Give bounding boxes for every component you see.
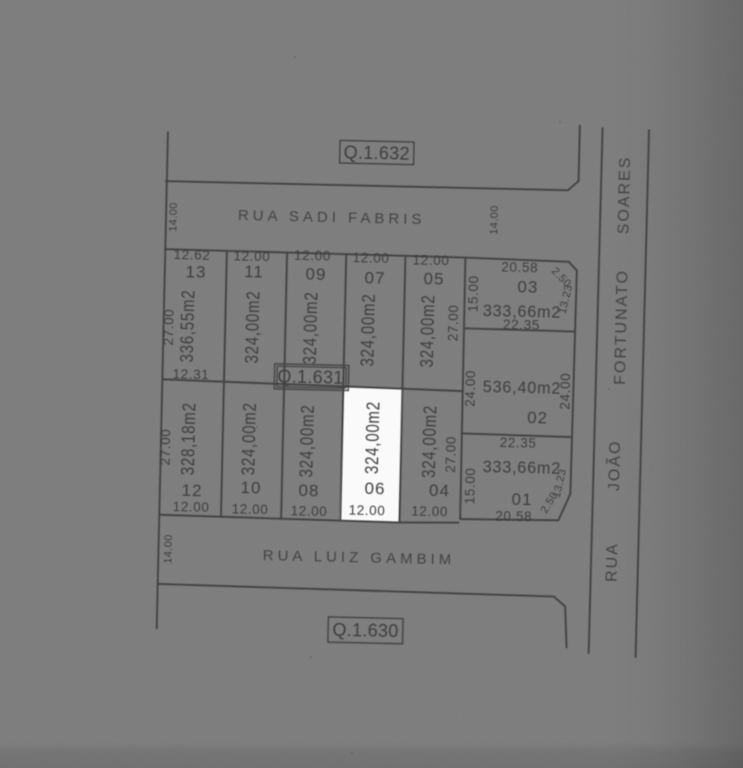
svg-text:27.00: 27.00 <box>161 308 177 345</box>
svg-text:24.00: 24.00 <box>557 373 573 410</box>
svg-text:11: 11 <box>244 262 264 281</box>
svg-text:12.00: 12.00 <box>411 504 448 520</box>
svg-text:333,66m2: 333,66m2 <box>482 458 561 478</box>
svg-text:Q.1.630: Q.1.630 <box>332 620 399 641</box>
svg-text:336,55m2: 336,55m2 <box>176 289 199 362</box>
svg-text:10: 10 <box>240 478 261 497</box>
svg-text:04: 04 <box>429 481 450 500</box>
svg-text:324,00m2: 324,00m2 <box>357 293 380 366</box>
svg-text:07: 07 <box>364 268 385 287</box>
svg-text:324,00m2: 324,00m2 <box>241 290 264 363</box>
svg-text:20.58: 20.58 <box>501 260 538 276</box>
svg-text:14.00: 14.00 <box>167 202 180 232</box>
svg-text:FORTUNATO: FORTUNATO <box>612 269 632 385</box>
svg-text:02: 02 <box>527 408 548 427</box>
svg-text:RUA: RUA <box>603 542 621 582</box>
svg-text:09: 09 <box>305 264 326 283</box>
svg-text:22.35: 22.35 <box>500 435 537 451</box>
svg-text:324,00m2: 324,00m2 <box>238 402 261 475</box>
svg-text:Q.1.631: Q.1.631 <box>277 366 344 387</box>
svg-text:03: 03 <box>517 277 538 296</box>
svg-text:05: 05 <box>423 269 444 288</box>
svg-text:08: 08 <box>298 481 319 500</box>
svg-text:12.00: 12.00 <box>173 499 210 515</box>
svg-text:Q.1.632: Q.1.632 <box>343 142 410 163</box>
svg-text:536,40m2: 536,40m2 <box>483 378 562 398</box>
svg-text:12.00: 12.00 <box>290 503 327 519</box>
svg-text:12.00: 12.00 <box>231 501 268 517</box>
svg-text:22.35: 22.35 <box>503 317 540 333</box>
svg-text:27.00: 27.00 <box>443 436 459 473</box>
svg-text:328,18m2: 328,18m2 <box>177 402 200 475</box>
svg-text:15.00: 15.00 <box>462 467 478 504</box>
svg-text:14.00: 14.00 <box>488 205 501 235</box>
svg-text:12.00: 12.00 <box>353 250 390 266</box>
svg-text:24.00: 24.00 <box>462 370 478 407</box>
svg-text:324,00m2: 324,00m2 <box>361 401 384 474</box>
svg-text:12.00: 12.00 <box>294 248 331 264</box>
svg-text:12: 12 <box>181 481 202 500</box>
svg-text:01: 01 <box>511 490 532 509</box>
svg-text:13: 13 <box>185 262 206 281</box>
svg-text:324,00m2: 324,00m2 <box>418 405 441 478</box>
svg-text:324,00m2: 324,00m2 <box>296 404 319 477</box>
svg-text:JOÃO: JOÃO <box>603 439 624 491</box>
svg-text:12.62: 12.62 <box>173 247 210 263</box>
svg-text:12.31: 12.31 <box>172 367 209 383</box>
svg-text:27.00: 27.00 <box>158 428 174 465</box>
svg-text:20.58: 20.58 <box>495 508 532 524</box>
svg-text:14.00: 14.00 <box>162 534 175 564</box>
svg-text:15.00: 15.00 <box>466 275 482 312</box>
svg-text:324,00m2: 324,00m2 <box>416 294 439 367</box>
svg-text:12.00: 12.00 <box>348 502 385 518</box>
svg-text:SOARES: SOARES <box>615 155 634 234</box>
svg-text:324,00m2: 324,00m2 <box>299 291 322 364</box>
svg-text:27.00: 27.00 <box>445 304 461 341</box>
svg-text:06: 06 <box>364 479 385 498</box>
svg-text:12.00: 12.00 <box>412 253 449 269</box>
